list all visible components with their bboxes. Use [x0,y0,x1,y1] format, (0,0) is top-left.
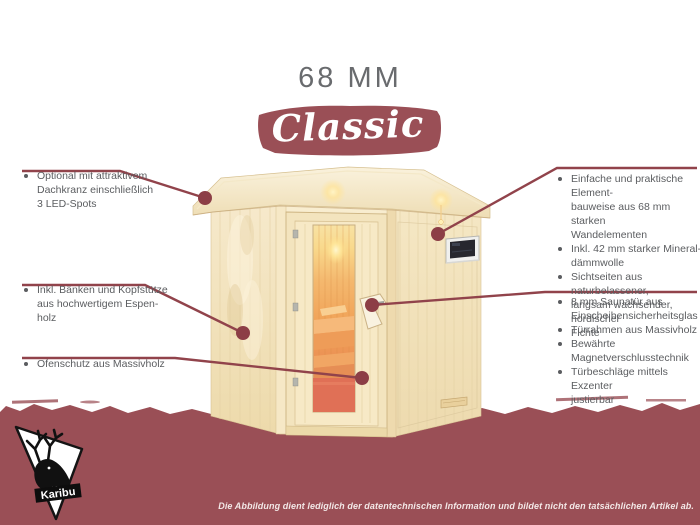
callout-text-line: holz [22,311,192,325]
callout-dot [355,371,369,385]
callout-text-line: Einfache und praktische Element- [556,172,700,200]
callout-text-line: Inkl. Bänken und Kopfstütze [22,283,192,297]
callout-left-led-spots: Optional mit attraktivem Dachkranz einsc… [22,169,182,211]
callout-left-benches: Inkl. Bänken und Kopfstütze aus hochwert… [22,283,192,325]
callout-text-line: justierbar [556,393,700,407]
callout-dot [236,326,250,340]
callout-text-line: Türrahmen aus Massivholz [556,323,700,337]
callout-text-line: aus hochwertigem Espen- [22,297,192,311]
disclaimer-text: Die Abbildung dient lediglich der datent… [0,501,694,511]
callout-text-line: 8 mm Saunatür aus [556,295,700,309]
callout-text-line: Dachkranz einschließlich [22,183,182,197]
callout-dot [198,191,212,205]
callout-text-line: 3 LED-Spots [22,197,182,211]
series-banner: Classic [254,102,442,158]
sauna-door [286,212,387,437]
product-infographic: Karibu 68 MM Classic Optional mit attrak… [0,0,700,525]
sauna-left-wall [211,205,280,434]
callout-left-oven-guard: Ofenschutz aus Massivholz [22,357,202,371]
door-hinge [293,378,298,386]
callout-text-line: Optional mit attraktivem [22,169,182,183]
series-name: Classic [253,101,442,152]
sauna-interior-view [313,225,355,412]
door-hinge [293,303,298,311]
page-title: 68 MM [0,62,700,95]
callout-text-line: Wandelementen [556,228,700,242]
callout-text-line: bauweise aus 68 mm starken [556,200,700,228]
corner-trim-right [387,208,396,437]
callout-text-line: Ofenschutz aus Massivholz [22,357,202,371]
callout-text-line: Bewährte Magnetverschlusstechnik [556,337,700,365]
sauna-illustration [193,167,490,437]
callout-dot [365,298,379,312]
callout-text-line: Einscheibensicherheitsglas [556,309,700,323]
sauna-control-panel [446,236,479,263]
callout-text-line: Türbeschläge mittels Exzenter [556,365,700,393]
door-hinge [293,230,298,238]
callout-text-line: Inkl. 42 mm starker Mineral- [556,242,700,256]
callout-text-line: dämmwolle [556,256,700,270]
callout-text-line: Sichtseiten aus naturbelassener, [556,270,700,298]
corner-trim-left [276,205,286,434]
callout-dot [431,227,445,241]
callout-right-door-details: 8 mm Saunatür aus Einscheibensicherheits… [556,295,700,407]
